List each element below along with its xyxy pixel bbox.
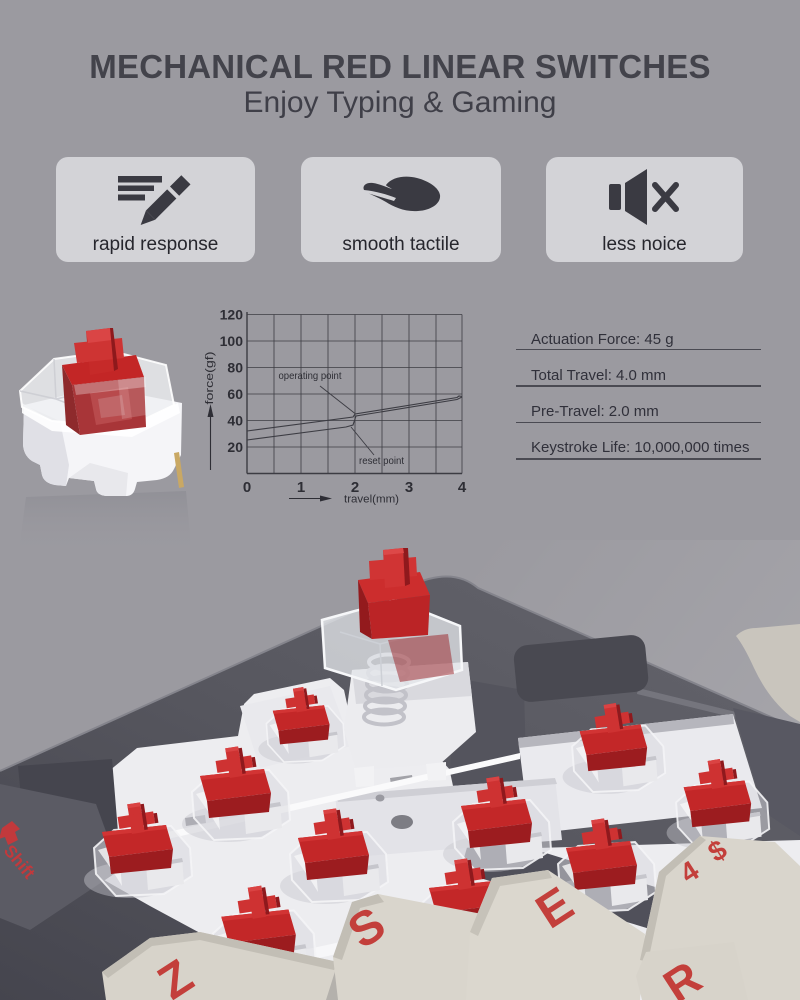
svg-text:80: 80 (227, 360, 243, 376)
svg-text:3: 3 (405, 479, 413, 496)
svg-text:60: 60 (227, 386, 243, 402)
svg-text:1: 1 (297, 479, 305, 496)
svg-text:operating point: operating point (279, 370, 342, 382)
svg-text:0: 0 (243, 479, 251, 496)
svg-text:4: 4 (458, 479, 467, 496)
svg-text:travel(mm): travel(mm) (344, 494, 399, 506)
svg-text:force(gf): force(gf) (204, 352, 216, 405)
svg-text:120: 120 (220, 307, 244, 323)
svg-text:100: 100 (220, 333, 244, 349)
svg-text:reset point: reset point (359, 455, 404, 467)
svg-text:20: 20 (227, 439, 243, 455)
svg-text:40: 40 (227, 413, 243, 429)
